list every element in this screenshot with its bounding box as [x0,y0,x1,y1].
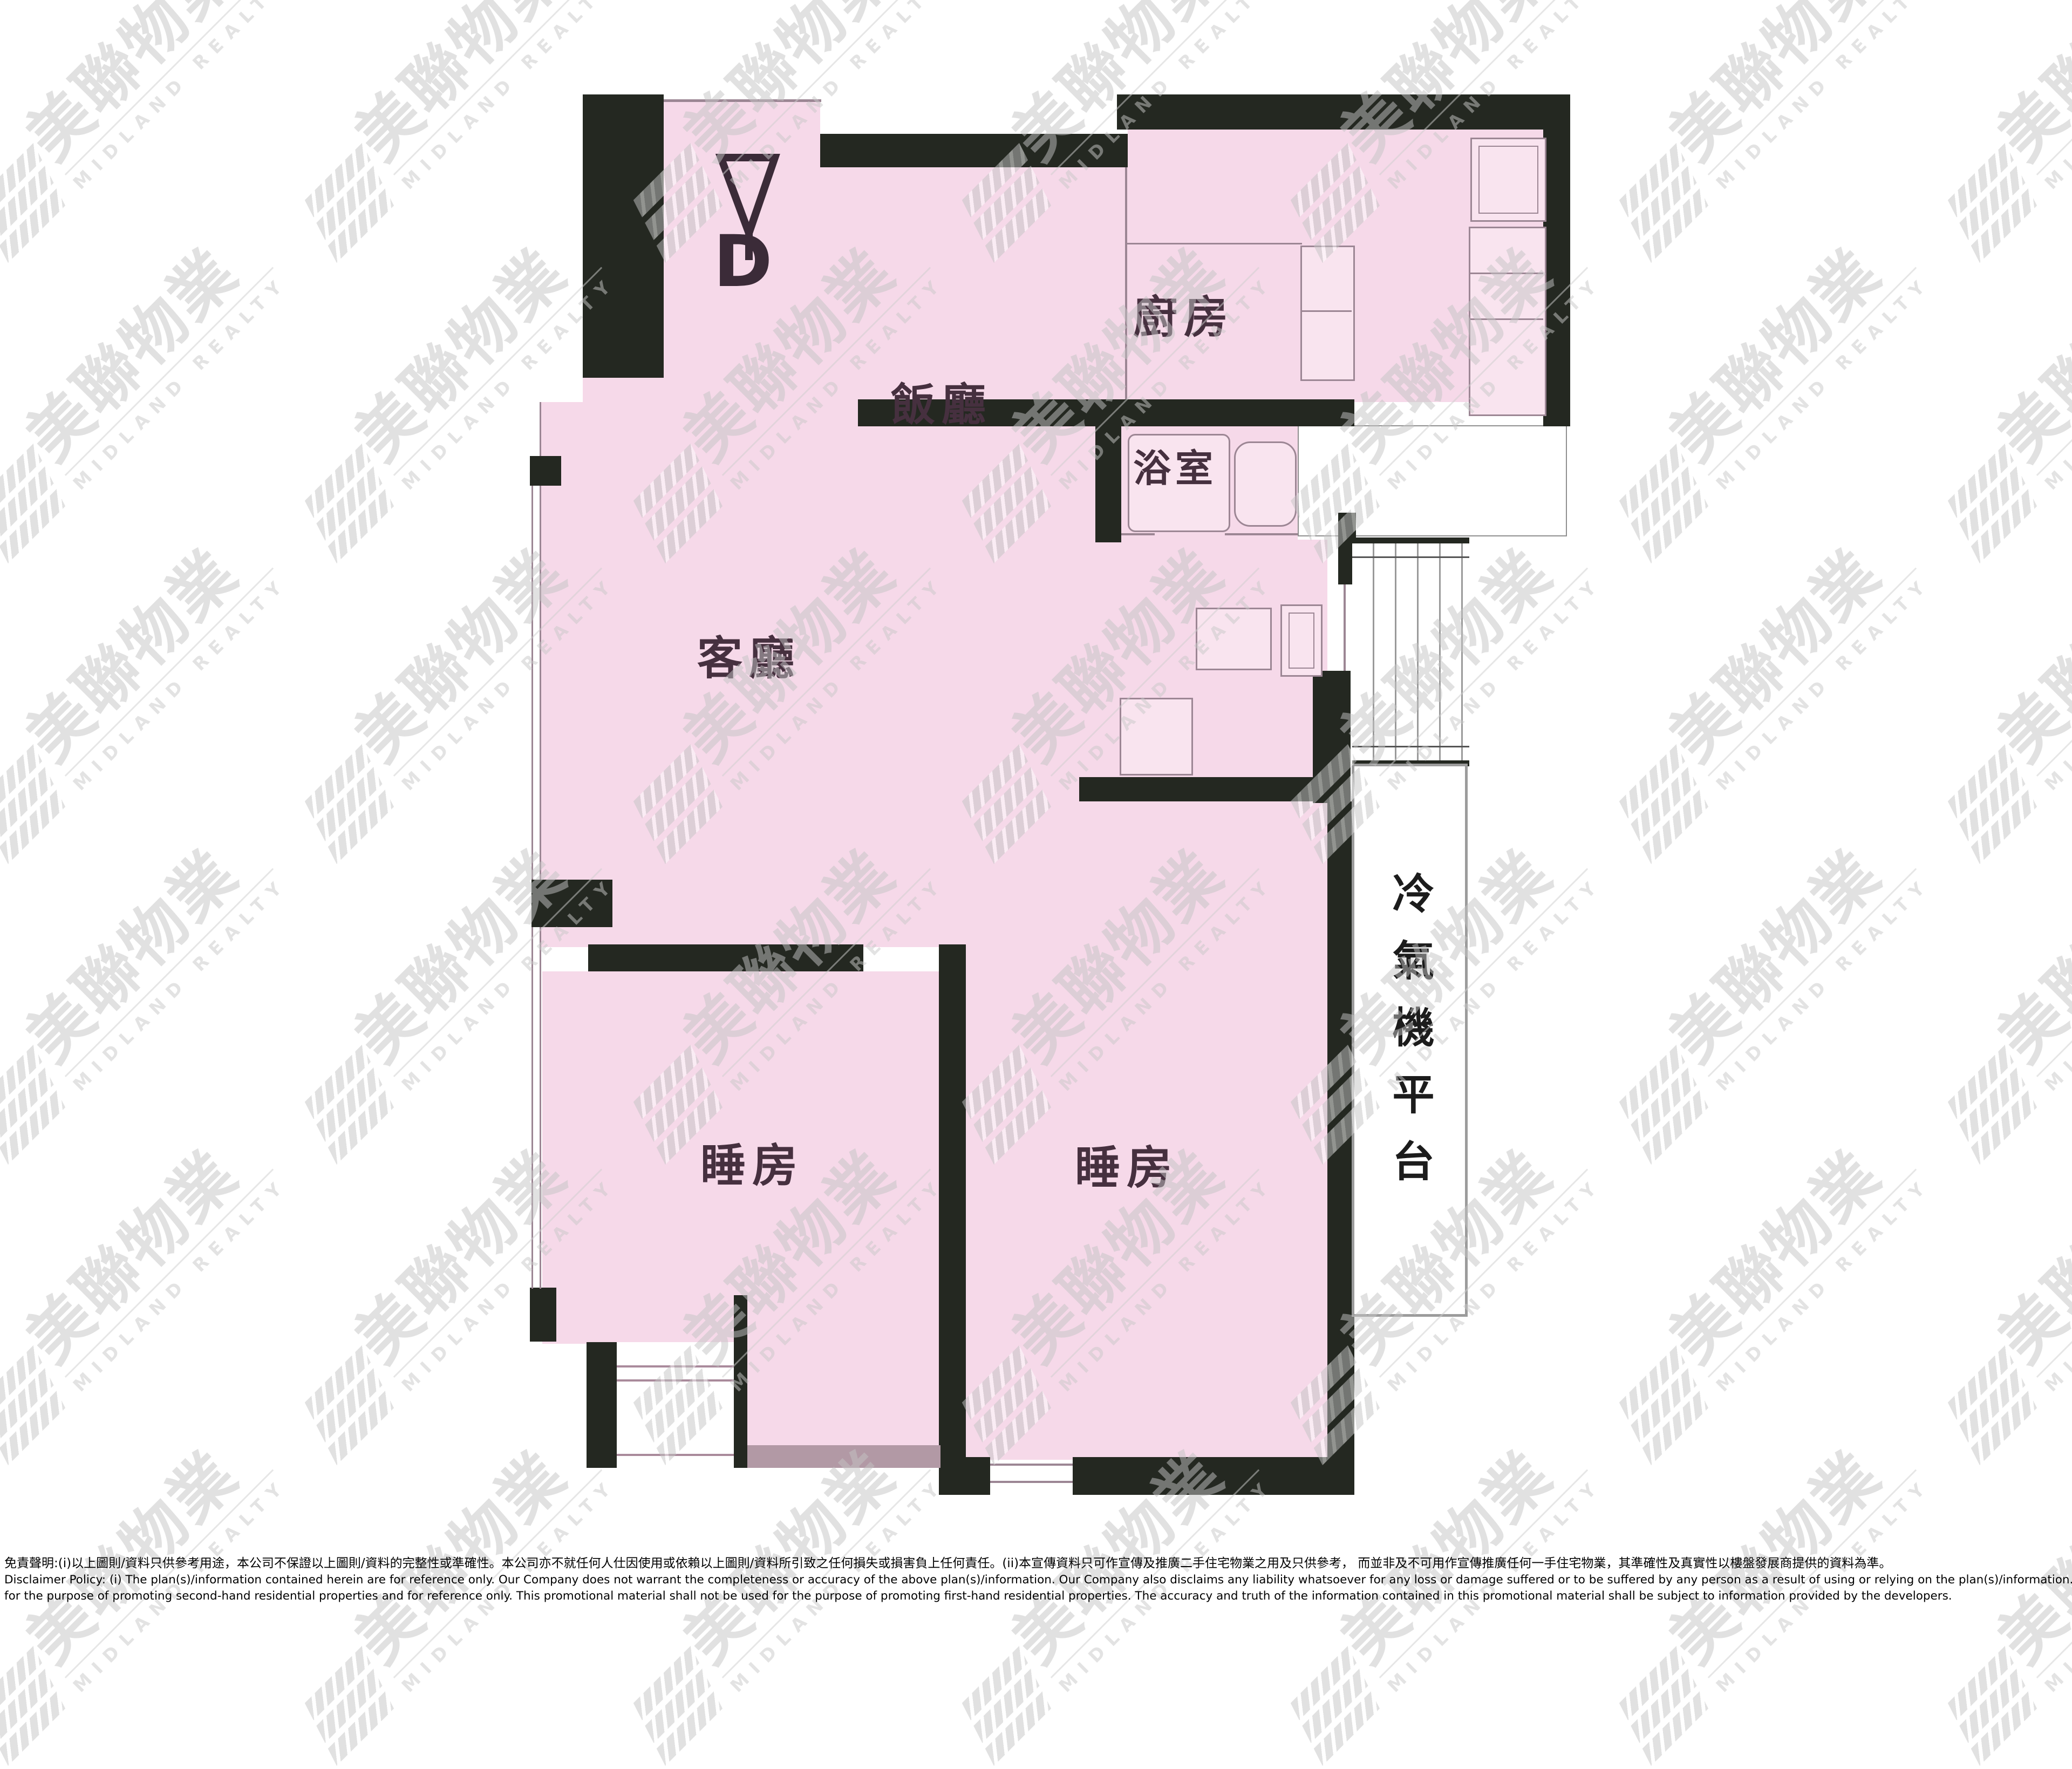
kitchen-counter-line [1125,243,1302,244]
bedroom2-window-line [990,1464,1073,1466]
bay-window-line [617,1365,734,1367]
midland-bars-icon [1948,1646,2037,1766]
bedroom-window-line [540,927,541,1289]
label-dining: 飯廳 [891,383,992,427]
wall-segment [1117,94,1570,130]
water-heater [1280,604,1323,677]
wall-segment [583,94,664,378]
bedroom2-window-line [990,1481,1073,1483]
kitchen-corner-appliance [1470,138,1546,222]
label-bathroom: 浴室 [1133,450,1217,487]
disclaimer-chinese: 免責聲明:(i)以上圖則/資料只供參考用途，本公司不保證以上圖則/資料的完整性或… [4,1557,1891,1570]
midland-bars-icon [962,1646,1051,1766]
wall-segment [939,944,966,1495]
bay-window-line [617,1379,734,1382]
wall-segment [1073,1457,1354,1495]
living-edge-line [540,402,541,456]
wall-segment [530,1288,556,1342]
disclaimer-english-line2: for the purpose of promoting second-hand… [4,1590,1952,1602]
appliance [1120,698,1193,775]
room-bedroom-right [966,785,1327,1460]
label-bedroom-right: 睡房 [1075,1145,1178,1190]
bay-window [617,1342,734,1468]
corridor-window-line [1344,584,1346,671]
living-window-line [531,486,533,880]
midland-bars-icon [1291,1646,1380,1766]
washer [1196,608,1272,670]
disclaimer-english-line1: Disclaimer Policy: (i) The plan(s)/infor… [4,1574,2072,1586]
counter-divider [1300,310,1352,312]
wall-segment [531,880,612,927]
wall-segment [1327,801,1354,1495]
wall-segment [588,944,863,971]
kitchen-counter [1469,227,1546,416]
wall-segment [820,134,1128,167]
wall-segment [966,1457,990,1495]
label-bedroom-left: 睡房 [700,1143,804,1188]
heater-inner [1289,613,1314,669]
ac-platform-box: 冷氣機平台 [1352,764,1468,1317]
label-living: 客廳 [697,636,801,681]
wall-segment [1079,777,1338,801]
wall-segment [1543,130,1570,426]
appliance-inner [1478,146,1538,214]
label-kitchen: 廚房 [1133,296,1235,340]
midland-bars-icon [633,1646,723,1766]
midland-bars-icon [1619,1646,1708,1766]
unit-flat-label: D [713,220,773,303]
counter-divider [1469,318,1543,320]
midland-bars-icon [0,1646,65,1766]
bay-window-line [617,1454,734,1456]
living-window-line [540,486,541,880]
wall-segment [587,1342,617,1468]
louvre-window [1352,537,1469,766]
kitchen-counter-column [1300,246,1355,381]
bathroom-door-line [1225,533,1298,535]
wall-segment [1095,426,1121,542]
bedroom-bottom-band [747,1445,940,1468]
room-bedroom-left [747,1344,939,1449]
counter-divider [1469,273,1543,274]
toilet [1234,441,1297,527]
room-dining [664,167,1543,402]
bathroom-door-line [1121,533,1155,535]
midland-bars-icon [305,1646,394,1766]
bedroom-window-line [531,927,533,1289]
floor-plan: 冷氣機平台 D 廚房 飯廳 浴室 客廳 睡房 睡房 [0,0,2072,1614]
wall-segment [734,1295,747,1468]
kitchen-divider-line [1125,167,1127,399]
wall-segment [530,456,561,486]
label-ac-platform: 冷氣機平台 [1380,872,1440,1314]
door-threshold-line [664,99,821,102]
